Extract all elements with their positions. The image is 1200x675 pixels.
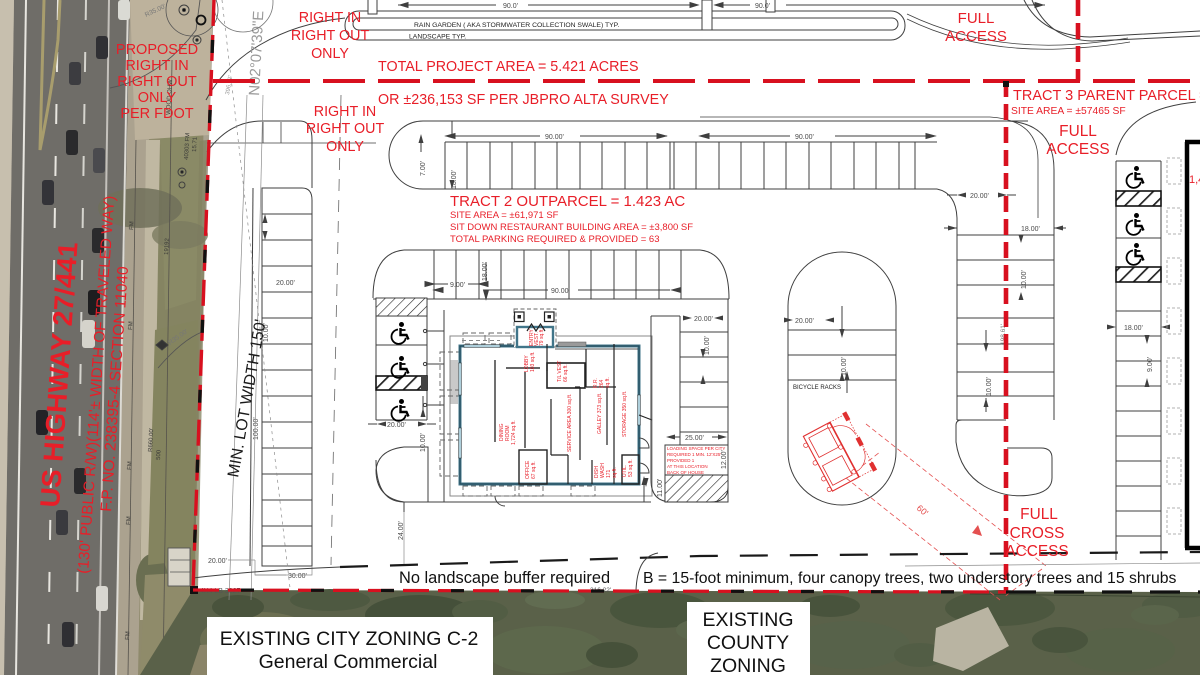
svg-text:GALLEY 373 sq.ft.: GALLEY 373 sq.ft. (597, 393, 603, 434)
svg-text:SITE AREA = ±61,971 SF: SITE AREA = ±61,971 SF (450, 210, 559, 221)
svg-text:103 sq.ft.: 103 sq.ft. (530, 351, 536, 372)
svg-text:PER FDOT: PER FDOT (120, 106, 193, 122)
svg-text:PROPOSED: PROPOSED (116, 42, 198, 58)
svg-text:RIGHT IN: RIGHT IN (299, 10, 362, 26)
svg-text:18.00': 18.00' (482, 262, 489, 281)
svg-text:FM: FM (125, 631, 131, 640)
svg-text:ONLY: ONLY (138, 90, 177, 106)
svg-text:RIGHT OUT: RIGHT OUT (306, 121, 385, 137)
svg-text:79 sq.ft.: 79 sq.ft. (539, 328, 545, 346)
svg-text:10.00': 10.00' (986, 377, 993, 396)
svg-text:REQUIRED 1 MIN. 12'X25': REQUIRED 1 MIN. 12'X25' (667, 452, 721, 457)
svg-text:9.00': 9.00' (1147, 357, 1154, 372)
svg-text:1,724 sq.ft.: 1,724 sq.ft. (511, 420, 517, 445)
svg-text:90.00': 90.00' (545, 134, 564, 141)
svg-text:RIGHT OUT: RIGHT OUT (117, 74, 197, 90)
svg-text:19192: 19192 (164, 237, 171, 255)
svg-text:FM: FM (126, 516, 132, 525)
svg-text:ZONING: ZONING (710, 655, 786, 675)
svg-text:FM: FM (129, 221, 135, 230)
svg-text:BICYCLE RACKS: BICYCLE RACKS (793, 385, 841, 391)
svg-text:EXISTING CITY ZONING C-2: EXISTING CITY ZONING C-2 (220, 628, 479, 650)
svg-text:EXISTING: EXISTING (702, 609, 793, 631)
svg-text:53 sq.ft.: 53 sq.ft. (628, 459, 634, 477)
svg-text:RAIN GARDEN ( AKA STORMWATER C: RAIN GARDEN ( AKA STORMWATER COLLECTION … (414, 22, 619, 29)
svg-text:LOADING SPACE PER CITY: LOADING SPACE PER CITY (667, 446, 725, 451)
svg-text:90.00': 90.00' (795, 134, 814, 141)
svg-text:RIGHT IN: RIGHT IN (314, 104, 377, 120)
svg-text:20.00': 20.00' (694, 316, 713, 323)
svg-text:TOTAL PROJECT AREA = 5.421 ACR: TOTAL PROJECT AREA = 5.421 ACRES (378, 59, 639, 75)
svg-text:SERVICE AREA 300 sq.ft.: SERVICE AREA 300 sq.ft. (567, 394, 573, 452)
svg-text:FM: FM (127, 461, 133, 470)
svg-text:20.00': 20.00' (795, 318, 814, 325)
svg-text:STORAGE 350 sq.ft.: STORAGE 350 sq.ft. (622, 391, 628, 437)
svg-text:90.0': 90.0' (755, 3, 770, 10)
svg-text:10.00': 10.00' (420, 433, 427, 452)
svg-text:20.00': 20.00' (276, 280, 295, 287)
svg-text:500: 500 (156, 449, 163, 460)
svg-text:1,4: 1,4 (1189, 174, 1200, 186)
svg-text:SIT DOWN RESTAURANT BUILDING A: SIT DOWN RESTAURANT BUILDING AREA = ±3,8… (450, 222, 693, 233)
svg-text:11.00': 11.00' (657, 479, 664, 497)
svg-text:SITE AREA = ±57465 SF: SITE AREA = ±57465 SF (1011, 106, 1126, 117)
svg-text:18.00': 18.00' (1124, 325, 1143, 332)
svg-text:90.0': 90.0' (503, 3, 518, 10)
svg-text:FULL: FULL (1059, 123, 1097, 140)
svg-text:ACCESS: ACCESS (945, 28, 1007, 45)
svg-text:sq.ft.: sq.ft. (612, 467, 618, 478)
svg-text:FULL: FULL (958, 10, 995, 27)
svg-text:7.00': 7.00' (420, 161, 427, 176)
svg-text:66 sq.ft.: 66 sq.ft. (563, 364, 569, 382)
svg-text:90.00': 90.00' (551, 288, 570, 295)
svg-text:30.00': 30.00' (288, 573, 307, 580)
svg-text:General Commercial: General Commercial (259, 651, 438, 673)
svg-text:FULL: FULL (1020, 506, 1058, 523)
svg-text:BACK OF HOUSE: BACK OF HOUSE (667, 470, 704, 475)
svg-text:ONLY: ONLY (311, 46, 349, 62)
svg-text:OR ±236,153 SF PER JBPRO ALTA: OR ±236,153 SF PER JBPRO ALTA SURVEY (378, 92, 669, 108)
svg-text:R660.00': R660.00' (148, 428, 155, 452)
svg-text:20.00': 20.00' (208, 558, 227, 565)
svg-text:TRACT 2 OUTPARCEL = 1.423 AC: TRACT 2 OUTPARCEL = 1.423 AC (450, 193, 685, 210)
svg-text:FM: FM (128, 321, 134, 330)
svg-text:25.00': 25.00' (685, 435, 704, 442)
svg-text:20.00': 20.00' (970, 193, 989, 200)
svg-text:TOTAL PARKING REQUIRED & PROVI: TOTAL PARKING REQUIRED & PROVIDED = 63 (450, 234, 660, 245)
svg-text:10.00': 10.00' (1021, 270, 1028, 289)
svg-text:No landscape buffer required: No landscape buffer required (399, 569, 610, 587)
svg-text:ACCESS: ACCESS (1005, 543, 1068, 560)
svg-text:20.00': 20.00' (387, 422, 406, 429)
svg-text:RIGHT IN: RIGHT IN (125, 58, 188, 74)
svg-text:15.71: 15.71 (192, 136, 199, 152)
svg-text:9.00': 9.00' (450, 282, 465, 289)
svg-text:TRACT 3 PARENT PARCEL =: TRACT 3 PARENT PARCEL = (1013, 88, 1200, 104)
svg-text:12.00': 12.00' (721, 450, 728, 469)
svg-text:ONLY: ONLY (326, 139, 364, 155)
svg-text:sq.ft.: sq.ft. (605, 377, 611, 388)
svg-text:CROSS: CROSS (1010, 525, 1065, 542)
svg-text:18.00': 18.00' (1021, 226, 1040, 233)
svg-text:AT THIS LOCATION: AT THIS LOCATION (667, 464, 708, 469)
svg-text:PROVIDED 1: PROVIDED 1 (667, 458, 695, 463)
svg-text:67 sq.ft.: 67 sq.ft. (531, 461, 537, 479)
svg-text:100.00': 100.00' (253, 417, 260, 440)
svg-text:COUNTY: COUNTY (707, 632, 789, 654)
svg-text:ACCESS: ACCESS (1046, 141, 1109, 158)
svg-text:B = 15-foot minimum, four cano: B = 15-foot minimum, four canopy trees, … (643, 570, 1177, 587)
svg-text:10.00': 10.00' (704, 336, 711, 355)
svg-text:RIGHT OUT: RIGHT OUT (291, 28, 370, 44)
svg-text:LANDSCAPE TYP.: LANDSCAPE TYP. (409, 34, 466, 41)
